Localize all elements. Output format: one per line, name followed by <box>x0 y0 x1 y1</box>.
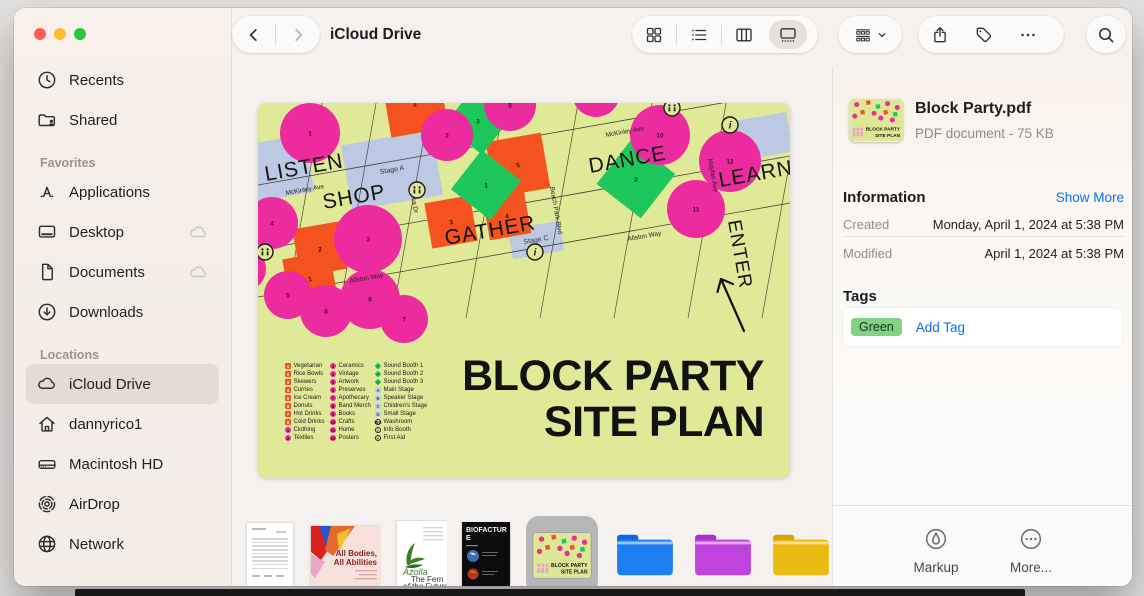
legend-entry-sound-booth-2: 2Sound Booth 2 <box>375 370 427 378</box>
window-title: iCloud Drive <box>330 16 421 53</box>
chevron-left-icon <box>244 25 264 45</box>
legend-marker: C <box>375 403 381 409</box>
legend-entry-donuts: 6Donuts <box>285 402 330 410</box>
sidebar-list: RecentsSharedFavoritesApplicationsDeskto… <box>14 60 231 564</box>
tag-button[interactable] <box>962 16 1006 53</box>
legend-entry-rice-bowls: 2Rice Bowls <box>285 370 330 378</box>
tag-chip-green[interactable]: Green <box>851 318 902 336</box>
chevron-right-icon <box>288 25 308 45</box>
sidebar-section-title: Locations <box>40 348 217 362</box>
legend-entry-hot-drinks: 7Hot Drinks <box>285 410 330 418</box>
legend-entry-crafts: 10Crafts <box>330 418 375 426</box>
svg-text:i: i <box>534 247 537 258</box>
legend-marker: 11 <box>330 427 336 433</box>
sidebar-item-network[interactable]: Network <box>26 524 219 564</box>
sidebar-item-label: Network <box>69 536 124 553</box>
legend-entry-books: 9Books <box>330 410 375 418</box>
legend-label: Band Merch <box>339 403 371 409</box>
legend-entry-sound-booth-1: 1Sound Booth 1 <box>375 362 427 370</box>
legend-marker: 6 <box>330 387 336 393</box>
sidebar-item-desktop[interactable]: Desktop <box>26 212 219 252</box>
globe-icon <box>36 533 58 555</box>
action-label: Markup <box>891 560 981 575</box>
svg-text:12: 12 <box>726 158 734 165</box>
legend-entry-children-s-stage: CChildren's Stage <box>375 402 427 410</box>
cloud-icon <box>36 373 58 395</box>
svg-text:2: 2 <box>445 132 449 139</box>
legend-marker: 1 <box>285 427 291 433</box>
sidebar-section-title: Favorites <box>40 156 217 170</box>
gallery-thumbnail-strip: All Bodies, All Abilities Azolla The Fer… <box>246 510 832 586</box>
legend-label: Hot Drinks <box>294 411 322 417</box>
sidebar-item-label: Macintosh HD <box>69 456 163 473</box>
sidebar-item-recents[interactable]: Recents <box>26 60 219 100</box>
shared-folder-icon <box>36 109 58 131</box>
markup-icon <box>923 526 949 552</box>
legend-entry-artwork: 5Artwork <box>330 378 375 386</box>
legend-entry-apothecary: 7Apothecary <box>330 394 375 402</box>
legend-marker: A <box>375 387 381 393</box>
sidebar-item-shared[interactable]: Shared <box>26 100 219 140</box>
legend-marker: 8 <box>285 419 291 425</box>
sidebar: RecentsSharedFavoritesApplicationsDeskto… <box>14 8 232 586</box>
svg-text:BLOCK PARTY: BLOCK PARTY <box>866 127 901 133</box>
tags-editor[interactable]: Green Add Tag <box>843 308 1122 346</box>
nav-controls <box>232 16 320 53</box>
legend-column: 1Sound Booth 12Sound Booth 23Sound Booth… <box>375 362 427 442</box>
legend-label: Main Stage <box>384 387 414 393</box>
legend-entry-posters: 12Posters <box>330 434 375 442</box>
legend-entry-cold-drinks: 8Cold Drinks <box>285 418 330 426</box>
svg-text:E: E <box>466 535 471 542</box>
svg-text:All Bodies,: All Bodies, <box>336 549 377 558</box>
ellipsis-icon <box>1018 25 1038 45</box>
legend-marker: + <box>375 435 381 441</box>
legend-label: Speaker Stage <box>384 395 424 401</box>
icon-view-icon <box>644 25 664 45</box>
legend-label: Ice Cream <box>294 395 322 401</box>
sidebar-item-label: Downloads <box>69 304 143 321</box>
window-controls <box>34 28 86 40</box>
legend-entry-band-merch: 8Band Merch <box>330 402 375 410</box>
svg-text:i: i <box>729 120 732 131</box>
legend-label: Books <box>339 411 356 417</box>
chevron-down-icon <box>876 29 888 41</box>
svg-text:1: 1 <box>484 182 488 189</box>
legend-label: Skewers <box>294 379 317 385</box>
legend-entry-vegetarian: 1Vegetarian <box>285 362 330 370</box>
svg-text:SITE PLAN: SITE PLAN <box>561 569 588 575</box>
share-button[interactable] <box>918 16 962 53</box>
legend-entry-vintage: 4Vintage <box>330 370 375 378</box>
sidebar-item-macintosh-hd[interactable]: Macintosh HD <box>26 444 219 484</box>
legend-marker: B <box>375 395 381 401</box>
sidebar-item-documents[interactable]: Documents <box>26 252 219 292</box>
legend-entry-small-stage: DSmall Stage <box>375 410 427 418</box>
legend-label: Apothecary <box>339 395 369 401</box>
add-tag-field[interactable]: Add Tag <box>916 320 965 335</box>
svg-text:BLOCK PARTY: BLOCK PARTY <box>551 562 588 568</box>
legend-entry-home: 11Home <box>330 426 375 434</box>
sidebar-item-label: Recents <box>69 72 124 89</box>
legend-entry-first-aid: +First Aid <box>375 434 427 442</box>
site-plan-legend: 1Vegetarian2Rice Bowls3Skewers4Curries5I… <box>285 362 427 442</box>
legend-marker: 1 <box>285 363 291 369</box>
svg-text:4: 4 <box>270 220 274 227</box>
legend-entry-info-booth: iInfo Booth <box>375 426 427 434</box>
legend-entry-sound-booth-3: 3Sound Booth 3 <box>375 378 427 386</box>
more-button[interactable]: More... <box>986 526 1076 575</box>
information-heading: Information <box>843 189 926 206</box>
legend-column: 1Vegetarian2Rice Bowls3Skewers4Curries5I… <box>285 362 330 442</box>
svg-text:10: 10 <box>656 132 664 139</box>
legend-marker: 5 <box>330 379 336 385</box>
sidebar-item-label: iCloud Drive <box>69 376 151 393</box>
legend-label: Ceramics <box>339 363 364 369</box>
legend-marker: 1 <box>375 363 382 370</box>
tag-chips: Green <box>851 318 902 336</box>
legend-label: Preserves <box>339 387 366 393</box>
thumbnail-block-party-site-plan[interactable]: BLOCK PARTYSITE PLAN <box>526 516 598 586</box>
sidebar-item-label: Applications <box>69 184 150 201</box>
desktop-icon <box>36 221 58 243</box>
file-preview-site-plan[interactable]: Stage AStage C252134321125101211345687LI… <box>258 103 790 478</box>
sidebar-item-airdrop[interactable]: AirDrop <box>26 484 219 524</box>
zoom-button[interactable] <box>74 28 86 40</box>
legend-marker: WC <box>375 419 381 425</box>
legend-entry-preserves: 6Preserves <box>330 386 375 394</box>
legend-label: Sound Booth 2 <box>384 371 424 377</box>
legend-entry-curries: 4Curries <box>285 386 330 394</box>
home-icon <box>36 413 58 435</box>
info-panel: BLOCK PARTYSITE PLAN Block Party.pdf PDF… <box>832 68 1132 586</box>
info-row-label: Modified <box>843 246 892 261</box>
thumbnail-blue-folder[interactable] <box>614 530 676 580</box>
thumbnail-agreement-document[interactable] <box>246 522 294 586</box>
sidebar-item-dannyrico1[interactable]: dannyrico1 <box>26 404 219 444</box>
legend-label: Textiles <box>294 435 314 441</box>
svg-text:3: 3 <box>476 118 480 125</box>
file-name: Block Party.pdf <box>915 100 1031 118</box>
legend-entry-skewers: 3Skewers <box>285 378 330 386</box>
svg-text:2: 2 <box>634 176 638 183</box>
legend-marker: 3 <box>330 363 336 369</box>
legend-label: Clothing <box>294 427 316 433</box>
legend-marker: 7 <box>285 411 291 417</box>
column-view-button[interactable] <box>722 16 766 53</box>
column-view-icon <box>734 25 754 45</box>
share-icon <box>930 25 950 45</box>
legend-label: Sound Booth 1 <box>384 363 424 369</box>
legend-label: Sound Booth 3 <box>384 379 424 385</box>
gallery-content: Stage AStage C252134321125101211345687LI… <box>232 68 832 586</box>
close-button[interactable] <box>34 28 46 40</box>
legend-entry-clothing: 1Clothing <box>285 426 330 434</box>
legend-marker: 6 <box>285 403 291 409</box>
legend-label: Crafts <box>339 419 355 425</box>
action-label: More... <box>986 560 1076 575</box>
legend-entry-washroom: WCWashroom <box>375 418 427 426</box>
legend-entry-ice-cream: 5Ice Cream <box>285 394 330 402</box>
thumbnail-yellow-folder[interactable] <box>770 530 832 580</box>
legend-label: First Aid <box>384 435 406 441</box>
legend-label: Vegetarian <box>294 363 323 369</box>
svg-text:11: 11 <box>693 206 700 213</box>
tag-icon <box>974 25 994 45</box>
thumbnail-purple-folder[interactable] <box>692 530 754 580</box>
divider <box>833 505 1132 506</box>
thumbnail-fern-article[interactable]: Azolla The Fern of the Future <box>396 520 446 586</box>
view-switcher <box>632 16 818 53</box>
svg-text:BIOFACTUR: BIOFACTUR <box>466 527 507 534</box>
legend-label: Washroom <box>384 419 413 425</box>
legend-entry-main-stage: AMain Stage <box>375 386 427 394</box>
clock-icon <box>36 69 58 91</box>
list-view-button[interactable] <box>677 16 721 53</box>
thumbnail-all-bodies-poster[interactable]: All Bodies, All Abilities <box>310 525 380 585</box>
svg-text:3: 3 <box>366 236 370 243</box>
finder-window: RecentsSharedFavoritesApplicationsDeskto… <box>14 8 1132 586</box>
sidebar-item-label: dannyrico1 <box>69 416 142 433</box>
svg-text:8: 8 <box>368 296 372 303</box>
legend-marker: 5 <box>285 395 291 401</box>
legend-label: Rice Bowls <box>294 371 324 377</box>
cloud-status-icon <box>188 222 209 243</box>
legend-marker: 12 <box>330 435 336 441</box>
legend-marker: 2 <box>285 435 291 441</box>
svg-text:1: 1 <box>308 130 312 137</box>
legend-marker: i <box>375 427 381 433</box>
search-icon <box>1096 25 1116 45</box>
group-by-button[interactable] <box>838 16 902 53</box>
cloud-status-icon <box>188 262 209 283</box>
download-icon <box>36 301 58 323</box>
info-row-value: April 1, 2024 at 5:38 PM <box>985 246 1124 261</box>
legend-label: Artwork <box>339 379 359 385</box>
legend-marker: 4 <box>330 371 336 377</box>
legend-marker: 9 <box>330 411 336 417</box>
legend-label: Cold Drinks <box>294 419 325 425</box>
app-store-icon <box>36 181 58 203</box>
file-thumbnail: BLOCK PARTYSITE PLAN <box>849 98 903 142</box>
legend-entry-textiles: 2Textiles <box>285 434 330 442</box>
legend-marker: 3 <box>285 379 291 385</box>
airdrop-icon <box>36 493 58 515</box>
document-icon <box>36 261 58 283</box>
minimize-button[interactable] <box>54 28 66 40</box>
legend-marker: 2 <box>285 371 291 377</box>
legend-marker: 8 <box>330 403 336 409</box>
legend-marker: 2 <box>375 371 382 378</box>
site-plan-title: BLOCK PARTY SITE PLAN <box>462 353 764 445</box>
legend-column: 3Ceramics4Vintage5Artwork6Preserves7Apot… <box>330 362 375 442</box>
forward-button[interactable] <box>276 16 319 53</box>
sidebar-item-applications[interactable]: Applications <box>26 172 219 212</box>
dock-edge <box>75 589 1025 596</box>
svg-text:7: 7 <box>402 316 406 323</box>
legend-marker: D <box>375 411 381 417</box>
more-actions-button[interactable] <box>1006 16 1050 53</box>
sidebar-item-downloads[interactable]: Downloads <box>26 292 219 332</box>
legend-label: Children's Stage <box>384 403 428 409</box>
thumbnail-biofacture-cover[interactable]: BIOFACTUR E <box>462 522 510 586</box>
legend-entry-ceramics: 3Ceramics <box>330 362 375 370</box>
legend-label: Small Stage <box>384 411 416 417</box>
divider <box>843 236 1124 237</box>
legend-marker: 7 <box>330 395 336 401</box>
legend-marker: 3 <box>375 379 382 386</box>
svg-text:of the Future: of the Future <box>403 582 447 586</box>
show-more-link[interactable]: Show More <box>1056 190 1124 205</box>
legend-label: Curries <box>294 387 313 393</box>
tags-heading: Tags <box>843 288 877 305</box>
markup-button[interactable]: Markup <box>891 526 981 575</box>
icon-view-button[interactable] <box>632 16 676 53</box>
gallery-view-icon <box>778 25 798 45</box>
back-button[interactable] <box>232 16 275 53</box>
gallery-view-button[interactable] <box>766 16 810 53</box>
svg-text:5: 5 <box>508 103 512 109</box>
legend-label: Posters <box>339 435 359 441</box>
svg-text:All Abilities: All Abilities <box>334 558 378 567</box>
sidebar-item-label: Desktop <box>69 224 124 241</box>
sidebar-item-icloud-drive[interactable]: iCloud Drive <box>26 364 219 404</box>
svg-text:5: 5 <box>286 292 290 299</box>
legend-label: Donuts <box>294 403 313 409</box>
search-button[interactable] <box>1086 16 1126 53</box>
legend-marker: 10 <box>330 419 336 425</box>
sidebar-item-label: Documents <box>69 264 145 281</box>
file-meta: PDF document - 75 KB <box>915 126 1054 141</box>
legend-label: Info Booth <box>384 427 411 433</box>
legend-label: Home <box>339 427 355 433</box>
svg-text:6: 6 <box>324 308 328 315</box>
group-by-icon <box>853 25 873 45</box>
info-row-value: Monday, April 1, 2024 at 5:38 PM <box>933 217 1124 232</box>
list-view-icon <box>689 25 709 45</box>
svg-text:SITE PLAN: SITE PLAN <box>875 133 901 139</box>
legend-entry-speaker-stage: BSpeaker Stage <box>375 394 427 402</box>
hdd-icon <box>36 453 58 475</box>
info-row-created: CreatedMonday, April 1, 2024 at 5:38 PM <box>843 217 1124 237</box>
legend-label: Vintage <box>339 371 359 377</box>
sidebar-item-label: Shared <box>69 112 117 129</box>
info-row-label: Created <box>843 217 889 232</box>
more-circle-icon <box>1018 526 1044 552</box>
info-row-modified: ModifiedApril 1, 2024 at 5:38 PM <box>843 246 1124 266</box>
toolbar-actions <box>918 16 1064 53</box>
legend-marker: 4 <box>285 387 291 393</box>
sidebar-item-label: AirDrop <box>69 496 120 513</box>
